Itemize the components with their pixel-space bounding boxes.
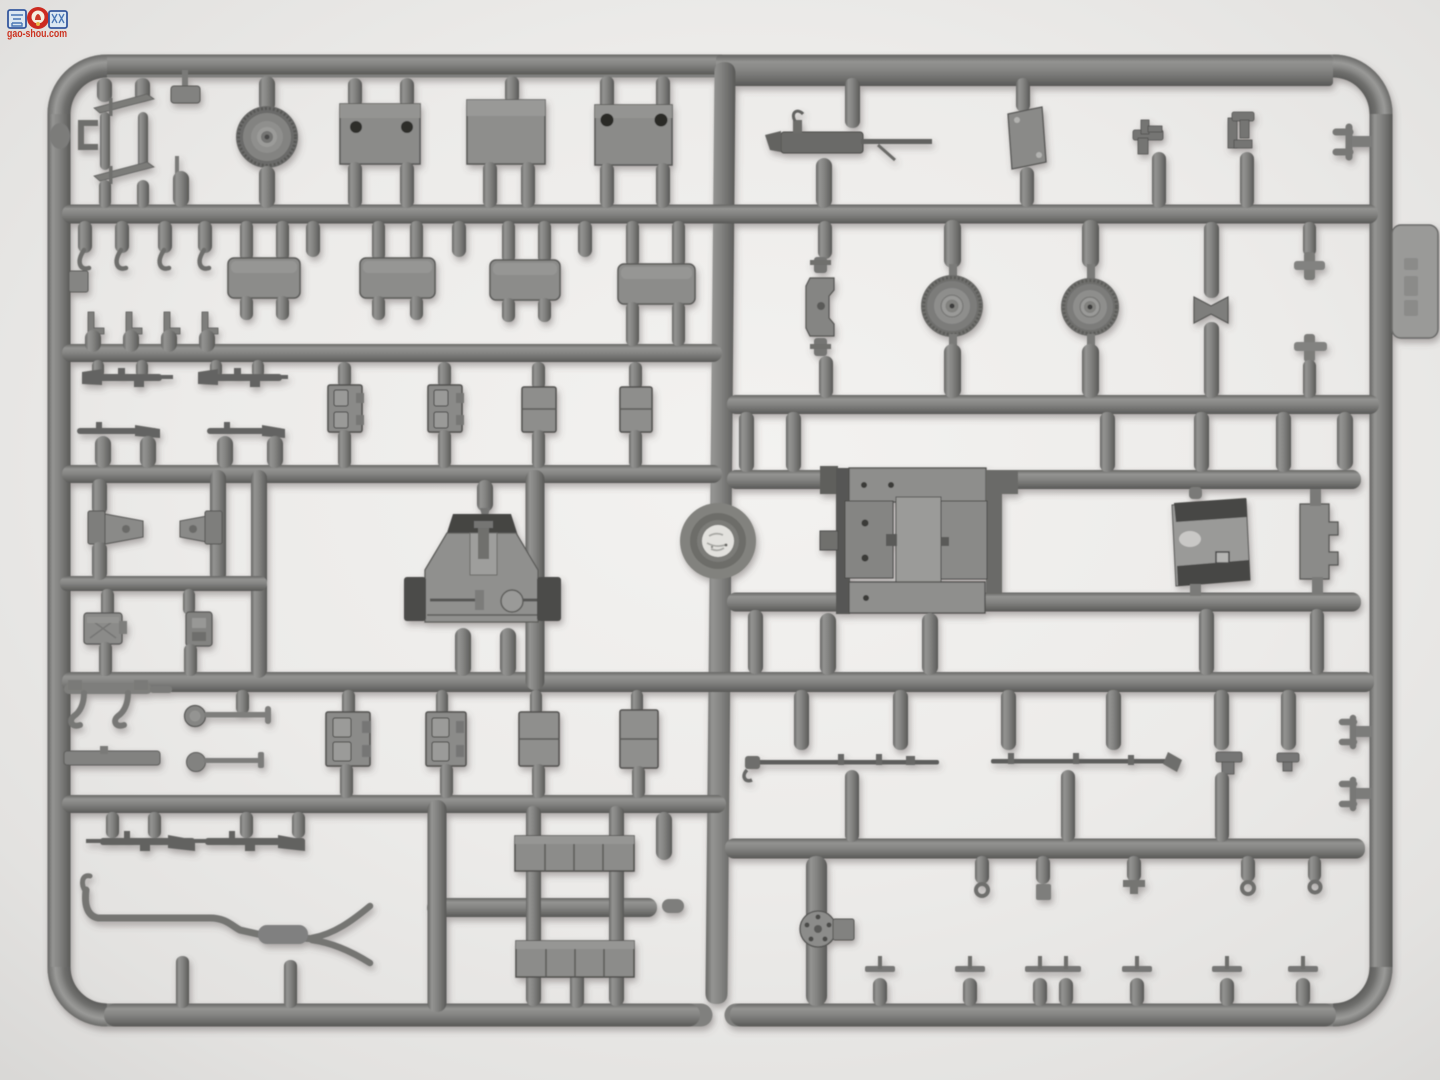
svg-text:gao-shou.com: gao-shou.com — [7, 28, 67, 40]
